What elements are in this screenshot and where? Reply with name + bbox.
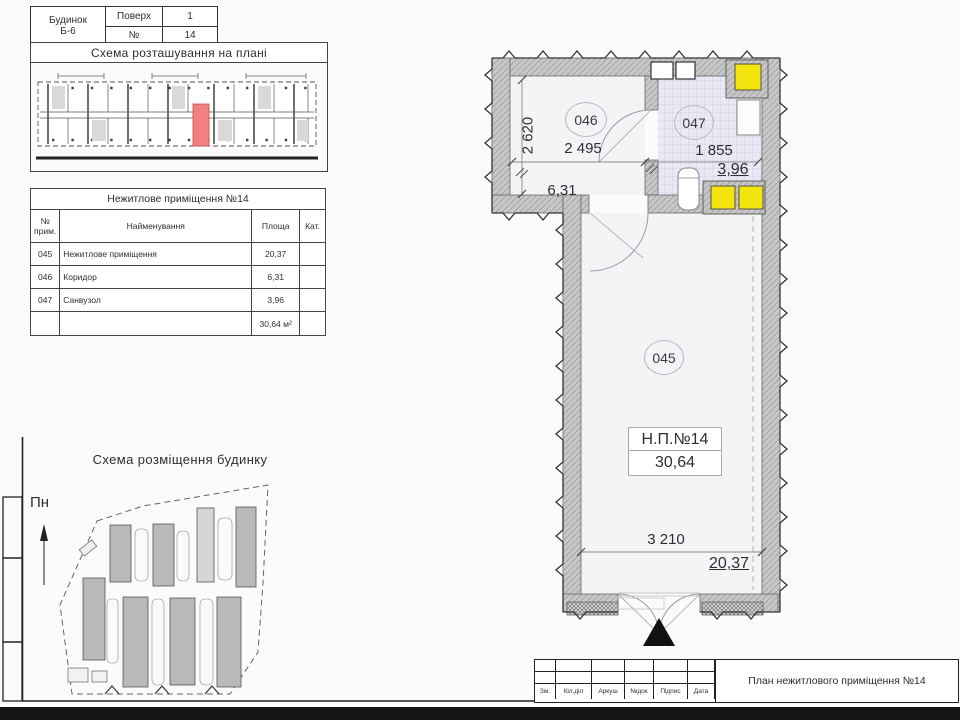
stamp-col-pidpys: Підпис [654,684,688,699]
col-cat: Кат. [300,210,326,243]
room-047-area: 3,96 [712,161,754,179]
premise-area-label: 30,64 [628,450,722,476]
floor-value: 1 [162,7,217,26]
title-block: Зм. Кіл.діл Аркуш №док Підпис Дата План … [534,659,959,703]
stamp-col-arkush: Аркуш [592,684,625,699]
building-value: Б-6 [60,26,75,37]
location-scheme-box: Схема розташування на плані [30,42,328,172]
stamp-col-kil: Кіл.діл [556,684,592,699]
floor-label: Поверх [105,7,162,26]
stamp-grid: Зм. Кіл.діл Аркуш №док Підпис Дата [535,660,715,702]
table-row: 045 Нежитлове приміщення 20,37 [31,243,326,266]
premises-title: Нежитлове приміщення №14 [31,189,326,210]
entrance-arrow-icon [643,618,675,646]
room-045-area: 20,37 [700,555,758,573]
location-scheme-title: Схема розташування на плані [31,43,327,63]
room-046-area: 6,31 [540,182,584,199]
sheet-header-table: Будинок Б-6 Поверх 1 № 14 [30,6,218,46]
premises-table: Нежитлове приміщення №14 № прим. Наймену… [30,188,326,336]
building-label: Будинок [49,15,87,26]
total-area: 30,64 м² [252,312,300,336]
col-name: Найменування [60,210,252,243]
table-row: 047 Санвузол 3,96 [31,289,326,312]
stamp-doc-title: План нежитлового приміщення №14 [715,660,958,702]
building-cell: Будинок Б-6 [31,7,105,45]
stamp-col-doc: №док [625,684,654,699]
col-area: Площа [252,210,300,243]
table-row: 046 Коридор 6,31 [31,266,326,289]
site-scheme-title: Схема розміщення будинку [60,452,300,467]
room-047-number: 047 [674,105,714,140]
room-045-width-dim: 3 210 [636,531,696,548]
room-046-height-dim: 2 620 [520,101,537,171]
stamp-col-data: Дата [688,684,715,699]
room-045-number: 045 [644,340,684,375]
room-046-number: 046 [565,102,607,137]
total-row: 30,64 м² [31,312,326,336]
room-047-width-dim: 1 855 [682,142,746,159]
north-arrow-icon [40,524,48,585]
col-id: № прим. [31,210,60,243]
stamp-col-zm: Зм. [535,684,556,699]
bottom-scan-bar [0,707,960,720]
room-046-width-dim: 2 495 [548,140,618,157]
north-label: Пн [30,494,49,511]
site-placement-plan [40,485,268,694]
